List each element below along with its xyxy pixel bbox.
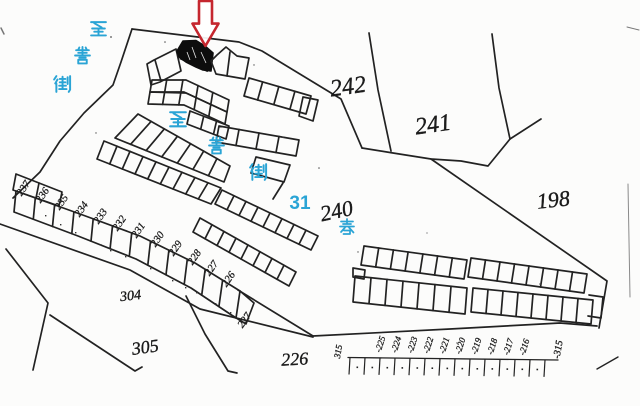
svg-text:-217: -217	[501, 337, 516, 356]
svg-text:227: 227	[203, 258, 221, 278]
svg-text:-224: -224	[389, 335, 404, 354]
svg-text:241: 241	[413, 110, 452, 141]
svg-text:-219: -219	[469, 336, 484, 355]
svg-text:229: 229	[167, 238, 185, 258]
svg-text:227: 227	[236, 310, 254, 330]
svg-text:234: 234	[73, 199, 91, 219]
svg-text:230: 230	[149, 229, 167, 249]
svg-text:226: 226	[281, 348, 309, 369]
svg-text:-221: -221	[437, 336, 452, 355]
svg-text:198: 198	[535, 185, 570, 213]
svg-text:242: 242	[328, 72, 367, 103]
svg-text:-225: -225	[373, 334, 388, 353]
svg-text:304: 304	[118, 288, 141, 305]
svg-text:-220: -220	[453, 336, 468, 355]
svg-text:226: 226	[220, 269, 238, 289]
svg-text:-216: -216	[517, 337, 532, 356]
svg-text:-315: -315	[552, 340, 566, 360]
svg-text:-218: -218	[485, 337, 500, 356]
svg-text:-222: -222	[421, 335, 436, 354]
svg-text:-223: -223	[405, 335, 420, 354]
svg-text:231: 231	[130, 221, 148, 240]
svg-text:305: 305	[129, 335, 160, 359]
svg-text:315: 315	[332, 343, 344, 360]
svg-text:31: 31	[289, 193, 311, 214]
svg-text:228: 228	[186, 247, 204, 267]
